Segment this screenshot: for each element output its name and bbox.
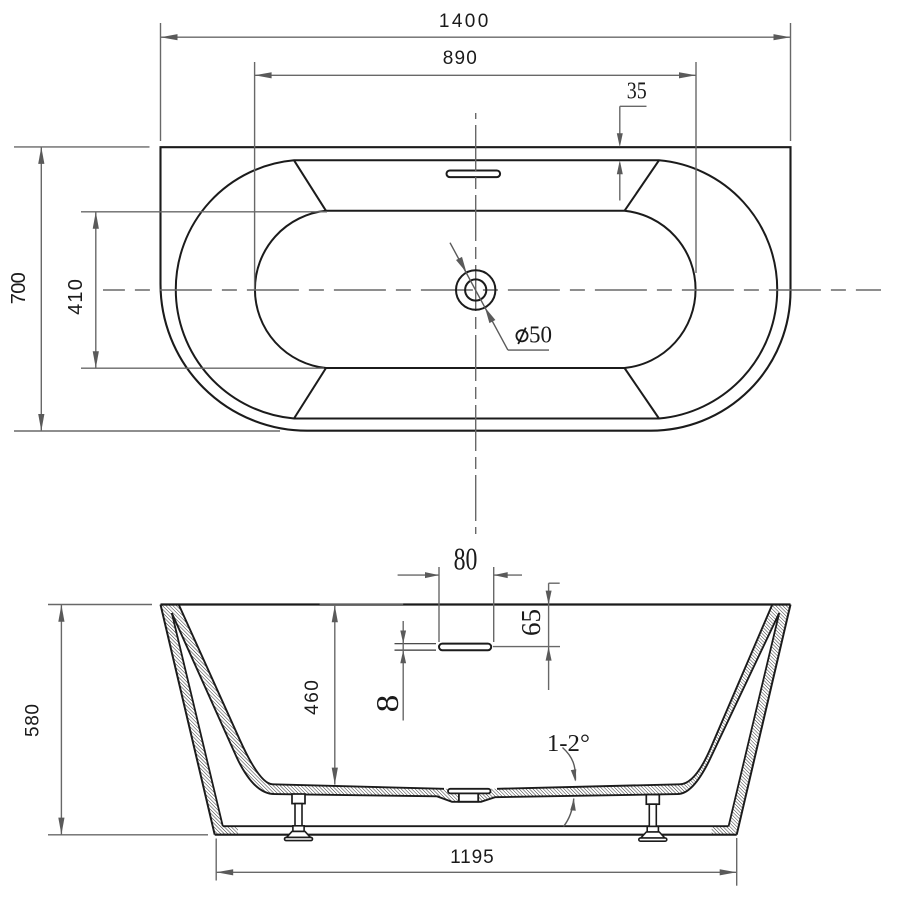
svg-text:460: 460 (302, 680, 323, 715)
svg-text:65: 65 (515, 609, 546, 636)
svg-text:410: 410 (65, 279, 87, 315)
svg-text:700: 700 (8, 272, 30, 304)
svg-text:80: 80 (454, 540, 478, 576)
svg-text:1195: 1195 (450, 847, 494, 868)
svg-text:890: 890 (443, 48, 477, 69)
svg-text:35: 35 (627, 79, 647, 105)
svg-text:580: 580 (22, 704, 43, 737)
svg-text:8: 8 (369, 695, 405, 713)
svg-text:50: 50 (529, 322, 552, 348)
